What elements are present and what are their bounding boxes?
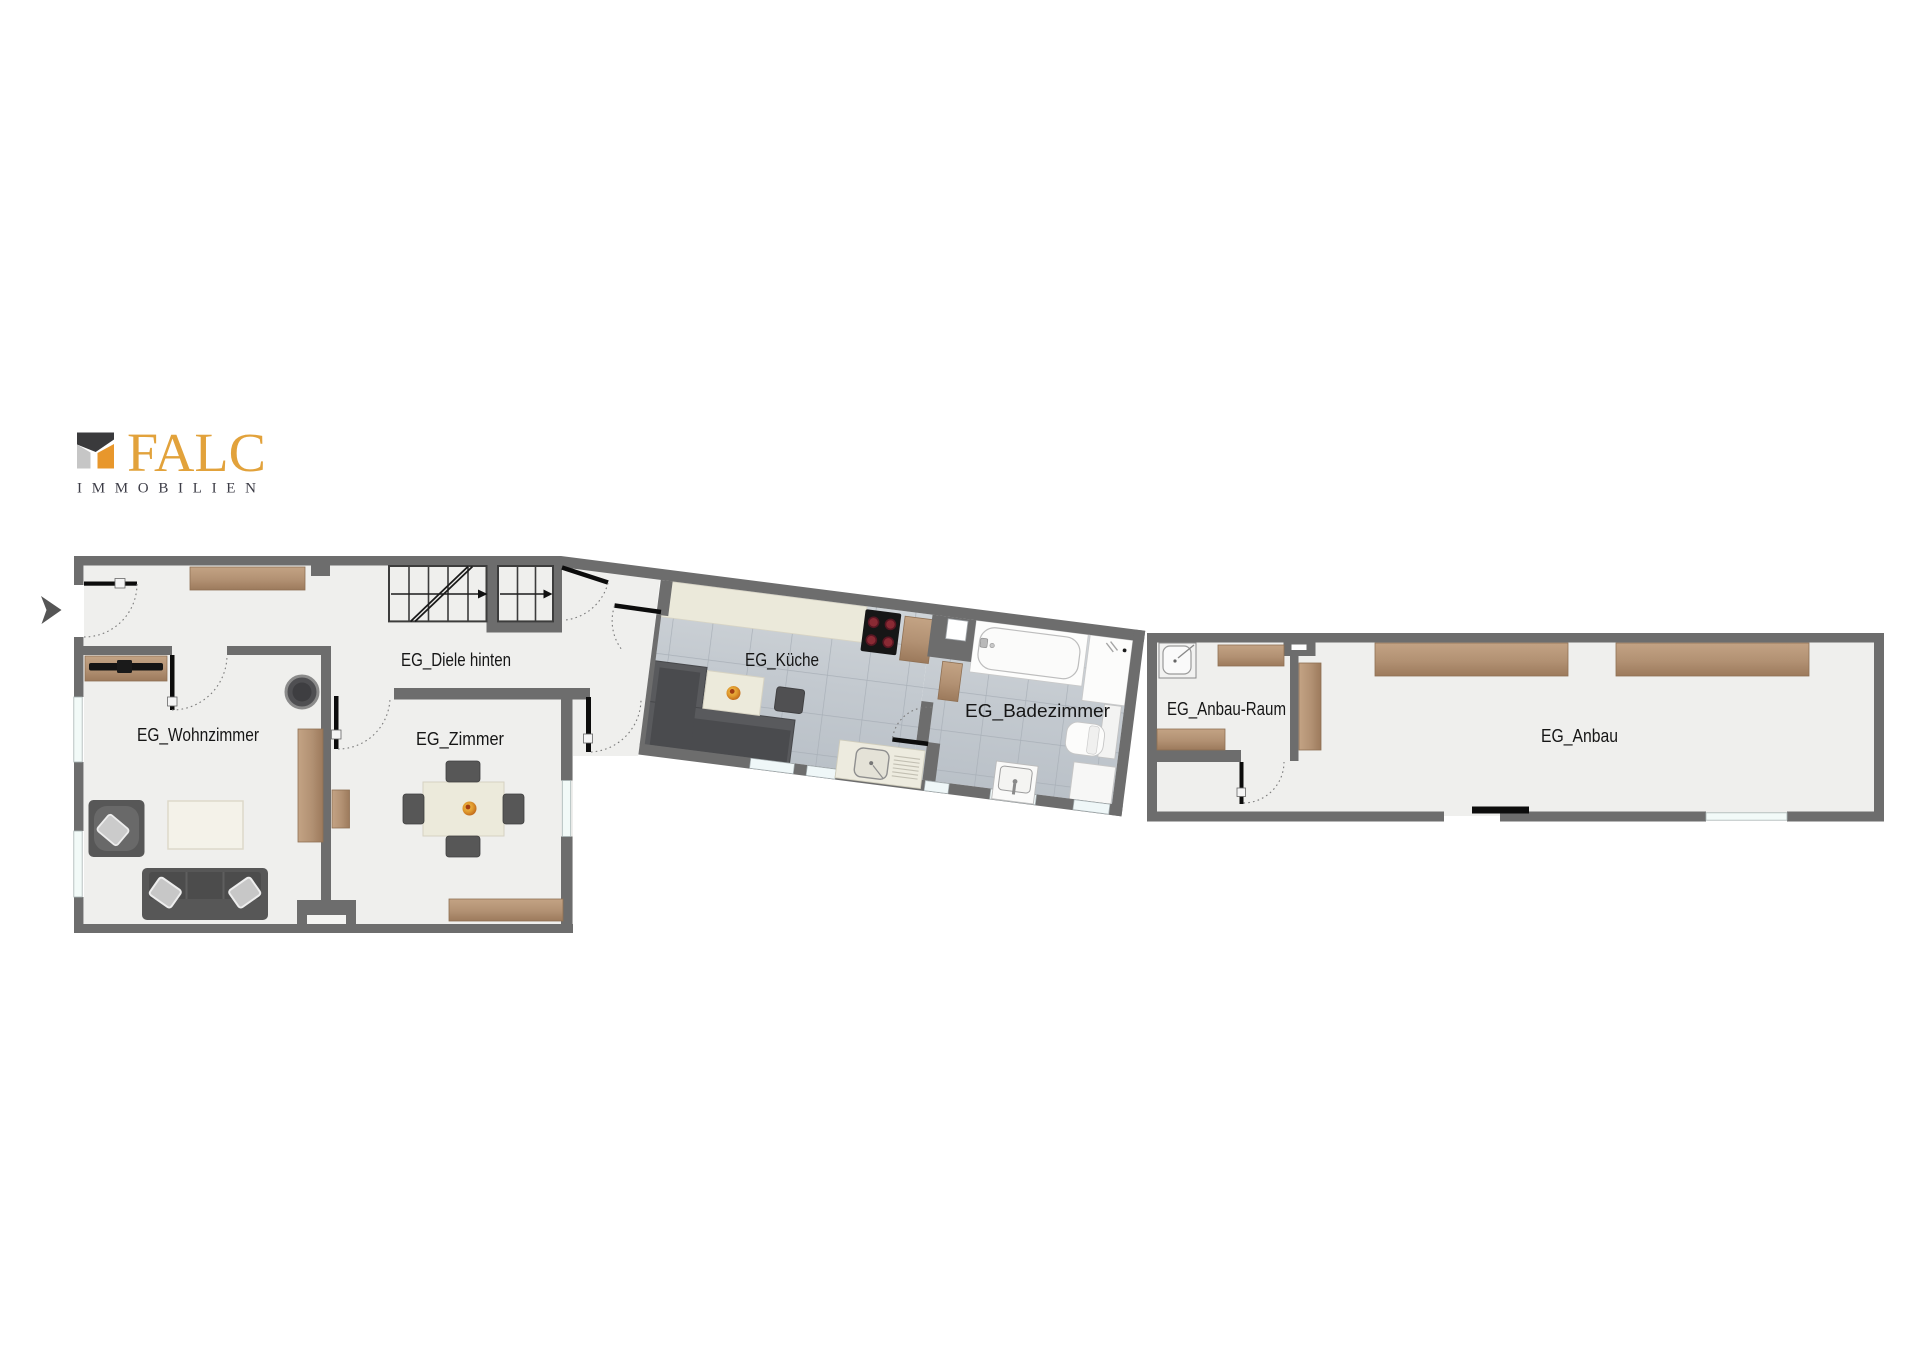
svg-text:EG_Anbau: EG_Anbau — [1541, 726, 1618, 747]
svg-text:EG_Badezimmer: EG_Badezimmer — [965, 701, 1110, 722]
svg-text:IMMOBILIEN: IMMOBILIEN — [77, 481, 263, 497]
svg-text:EG_Anbau-Raum: EG_Anbau-Raum — [1167, 699, 1286, 720]
svg-text:EG_Küche: EG_Küche — [745, 650, 819, 671]
svg-text:FALC: FALC — [127, 422, 266, 483]
svg-text:EG_Diele hinten: EG_Diele hinten — [401, 650, 511, 671]
svg-text:EG_Zimmer: EG_Zimmer — [416, 729, 504, 750]
svg-text:EG_Wohnzimmer: EG_Wohnzimmer — [137, 725, 259, 746]
